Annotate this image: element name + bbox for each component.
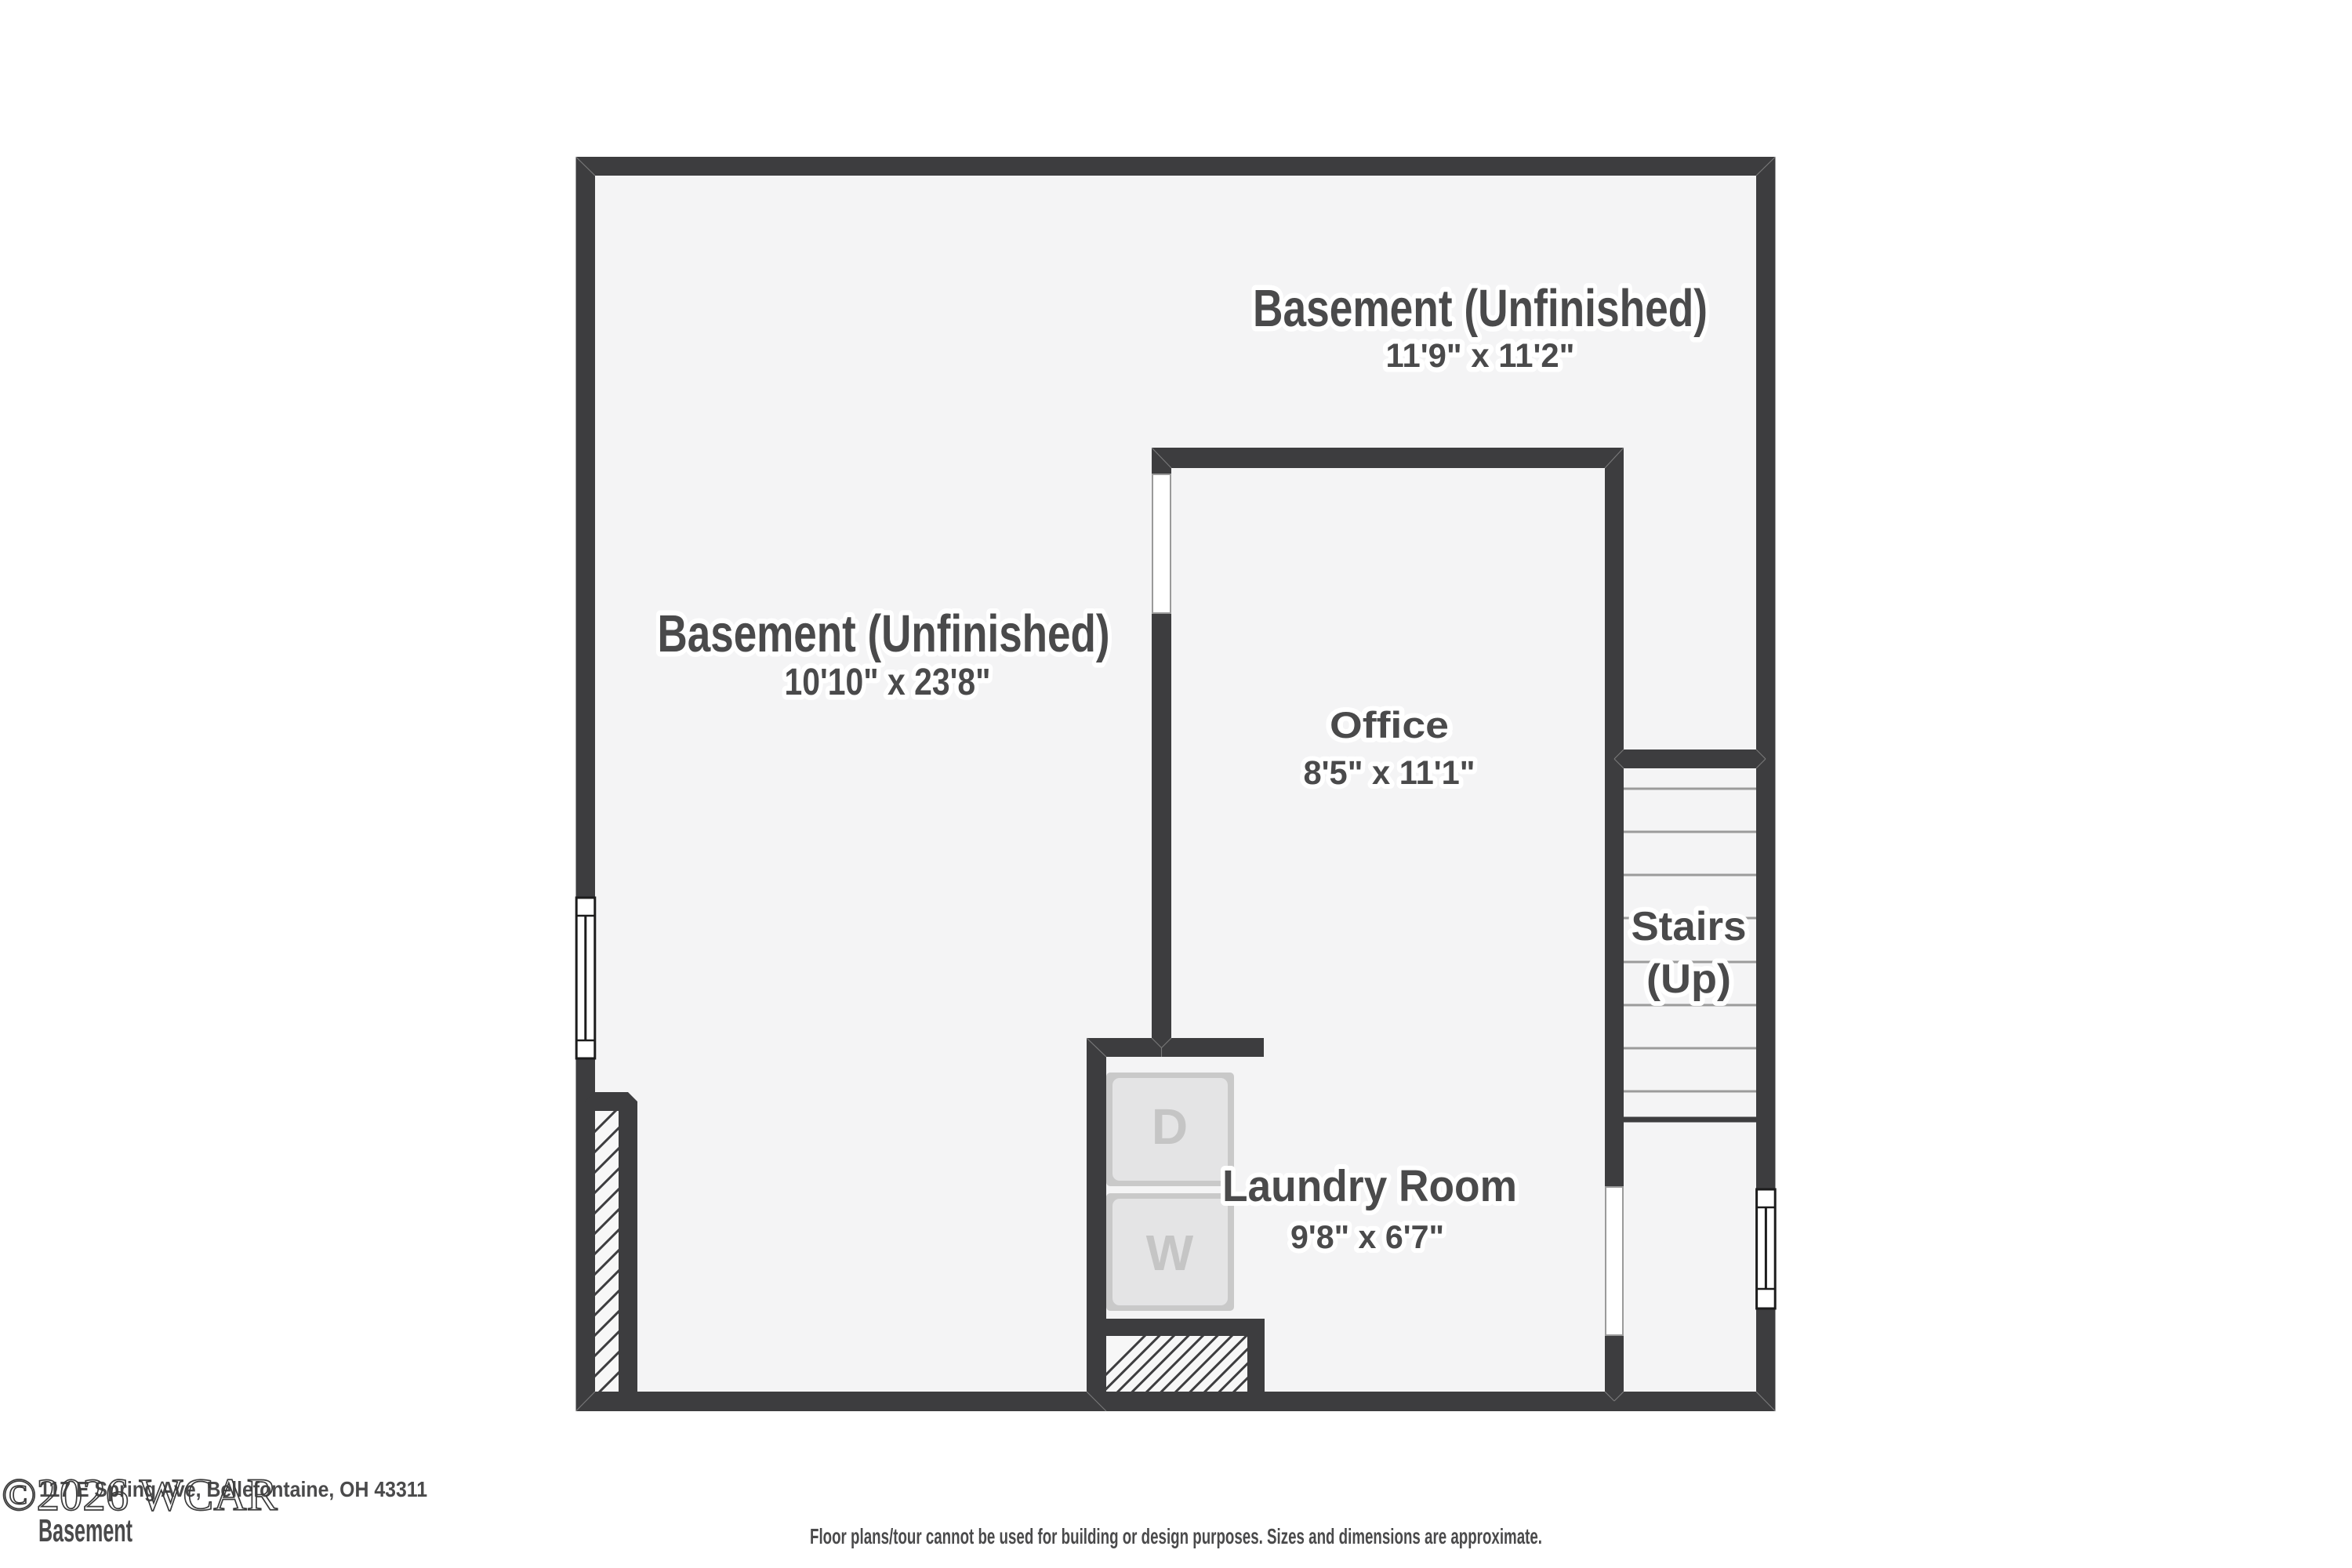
svg-text:Laundry Room: Laundry Room — [1222, 1161, 1517, 1211]
svg-text:8'5" x 11'1": 8'5" x 11'1" — [1304, 754, 1475, 792]
svg-text:Floor plans/tour cannot be use: Floor plans/tour cannot be used for buil… — [810, 1524, 1542, 1548]
svg-text:Basement (Unfinished): Basement (Unfinished) — [658, 604, 1110, 663]
svg-text:©2026 WCAR: ©2026 WCAR — [2, 1469, 278, 1520]
svg-text:9'8" x 6'7": 9'8" x 6'7" — [1290, 1218, 1444, 1255]
svg-text:Stairs: Stairs — [1632, 904, 1747, 949]
svg-text:W: W — [1146, 1225, 1194, 1281]
svg-text:D: D — [1152, 1098, 1188, 1155]
svg-text:Office: Office — [1330, 704, 1449, 746]
svg-text:Basement (Unfinished): Basement (Unfinished) — [1253, 279, 1708, 338]
svg-text:(Up): (Up) — [1646, 956, 1731, 1002]
svg-text:10'10" x 23'8": 10'10" x 23'8" — [785, 662, 991, 703]
svg-text:11'9" x 11'2": 11'9" x 11'2" — [1386, 338, 1575, 375]
